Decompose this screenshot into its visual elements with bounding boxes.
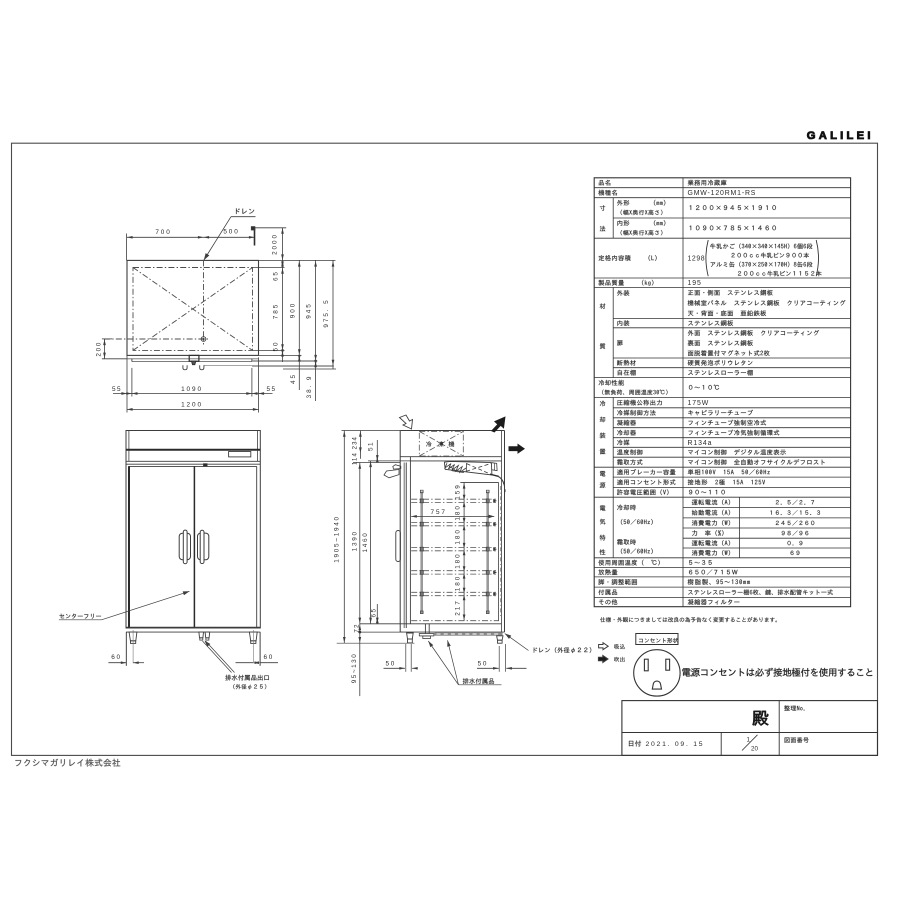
svg-text:2000: 2000 — [272, 233, 279, 255]
svg-text:65: 65 — [370, 607, 377, 617]
svg-text:114 234: 114 234 — [353, 436, 359, 465]
svg-text:1200: 1200 — [181, 402, 203, 409]
svg-text:700: 700 — [155, 229, 171, 236]
svg-text:65: 65 — [273, 270, 280, 281]
svg-text:180: 180 — [454, 575, 461, 591]
svg-text:55: 55 — [266, 386, 276, 393]
svg-text:60: 60 — [264, 654, 275, 661]
svg-text:180: 180 — [454, 552, 461, 568]
svg-text:180: 180 — [454, 528, 461, 544]
svg-text:38. 9: 38. 9 — [306, 375, 313, 399]
svg-text:50: 50 — [478, 660, 489, 667]
svg-text:159: 159 — [454, 483, 461, 499]
svg-text:1390: 1390 — [351, 530, 358, 551]
svg-text:195: 195 — [688, 280, 702, 287]
svg-text:R134a: R134a — [688, 440, 713, 447]
svg-text:217: 217 — [454, 599, 461, 615]
svg-text:55: 55 — [112, 386, 122, 393]
svg-text:785: 785 — [273, 303, 280, 319]
svg-text:1905~1940: 1905~1940 — [334, 515, 341, 562]
svg-text:1298: 1298 — [688, 256, 706, 263]
svg-text:50: 50 — [273, 341, 280, 352]
svg-text:180: 180 — [454, 504, 461, 520]
svg-text:975. 5: 975. 5 — [323, 298, 330, 327]
svg-text:51: 51 — [368, 441, 375, 451]
svg-text:500: 500 — [223, 229, 239, 236]
svg-text:20: 20 — [751, 746, 758, 753]
svg-text:900: 900 — [289, 302, 296, 318]
svg-text:72: 72 — [354, 623, 361, 633]
svg-text:60: 60 — [111, 654, 122, 661]
svg-text:1460: 1460 — [362, 531, 369, 552]
svg-text:95~130: 95~130 — [351, 653, 358, 684]
svg-text:GALILEI: GALILEI — [807, 130, 874, 142]
svg-text:GMW-120RM1-RS: GMW-120RM1-RS — [688, 190, 757, 197]
svg-text:757: 757 — [431, 509, 447, 516]
svg-text:945: 945 — [306, 302, 313, 318]
svg-text:175W: 175W — [688, 400, 710, 407]
svg-text:50: 50 — [386, 660, 397, 667]
svg-text:2021. 09. 15: 2021. 09. 15 — [646, 741, 705, 748]
svg-text:45: 45 — [290, 373, 297, 384]
svg-text:200: 200 — [95, 341, 102, 357]
svg-text:1090: 1090 — [181, 386, 203, 393]
